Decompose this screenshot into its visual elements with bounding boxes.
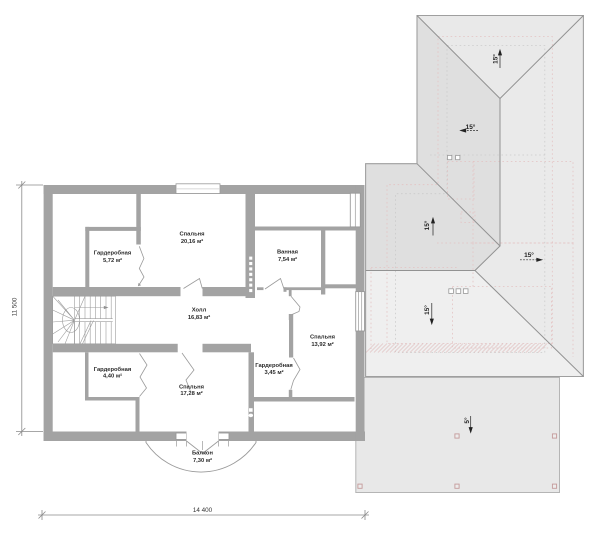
svg-text:Холл: Холл <box>192 308 207 314</box>
svg-text:16,83 м²: 16,83 м² <box>188 314 210 321</box>
svg-text:3,45 м²: 3,45 м² <box>264 369 283 376</box>
svg-text:7,30 м²: 7,30 м² <box>193 457 212 464</box>
svg-text:Гардеробная: Гардеробная <box>94 366 132 373</box>
svg-text:Ванная: Ванная <box>277 250 298 256</box>
svg-text:20,16 м²: 20,16 м² <box>181 238 203 245</box>
svg-text:Гардеробная: Гардеробная <box>94 250 132 257</box>
svg-text:Спальня: Спальня <box>179 385 204 391</box>
svg-text:Гардеробная: Гардеробная <box>255 362 293 369</box>
svg-text:15°: 15° <box>524 251 534 259</box>
svg-text:5°: 5° <box>463 417 471 424</box>
svg-text:Балкон: Балкон <box>192 451 213 457</box>
svg-text:Спальня: Спальня <box>179 232 204 238</box>
svg-text:15°: 15° <box>423 305 431 315</box>
svg-text:7,54 м²: 7,54 м² <box>278 256 297 263</box>
svg-text:15°: 15° <box>423 220 431 230</box>
svg-text:11 500: 11 500 <box>12 297 19 316</box>
svg-text:15°: 15° <box>466 123 476 131</box>
svg-text:5,72 м²: 5,72 м² <box>103 257 122 264</box>
svg-text:13,92 м²: 13,92 м² <box>311 341 333 348</box>
svg-text:Спальня: Спальня <box>310 335 335 341</box>
svg-text:4,40 м²: 4,40 м² <box>103 372 122 379</box>
svg-text:14 400: 14 400 <box>193 507 213 514</box>
svg-text:17,28 м²: 17,28 м² <box>180 390 202 397</box>
